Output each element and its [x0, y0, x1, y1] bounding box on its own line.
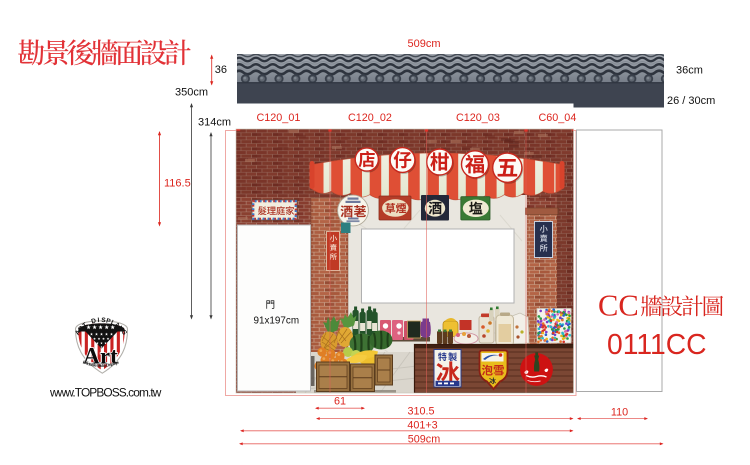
- svg-text:350cm: 350cm: [175, 87, 208, 99]
- svg-text:C60_04: C60_04: [539, 112, 577, 124]
- svg-text:509cm: 509cm: [407, 38, 440, 50]
- svg-text:www.TOPBOSS.com.tw: www.TOPBOSS.com.tw: [49, 386, 162, 400]
- svg-text:26 / 30cm: 26 / 30cm: [667, 95, 715, 107]
- svg-text:C120_02: C120_02: [348, 112, 392, 124]
- svg-text:61: 61: [334, 396, 346, 408]
- svg-text:C120_01: C120_01: [257, 112, 301, 124]
- svg-text:36cm: 36cm: [676, 65, 703, 77]
- svg-text:401+3: 401+3: [407, 419, 437, 431]
- svg-text:CC: CC: [598, 289, 639, 323]
- svg-text:310.5: 310.5: [407, 406, 434, 418]
- svg-text:0111CC: 0111CC: [607, 328, 707, 360]
- svg-text:C120_03: C120_03: [456, 112, 500, 124]
- svg-text:116.5: 116.5: [164, 178, 191, 190]
- svg-text:36: 36: [215, 64, 227, 76]
- svg-text:91x197cm: 91x197cm: [254, 316, 300, 327]
- svg-text:110: 110: [611, 407, 628, 419]
- svg-text:314cm: 314cm: [198, 117, 231, 129]
